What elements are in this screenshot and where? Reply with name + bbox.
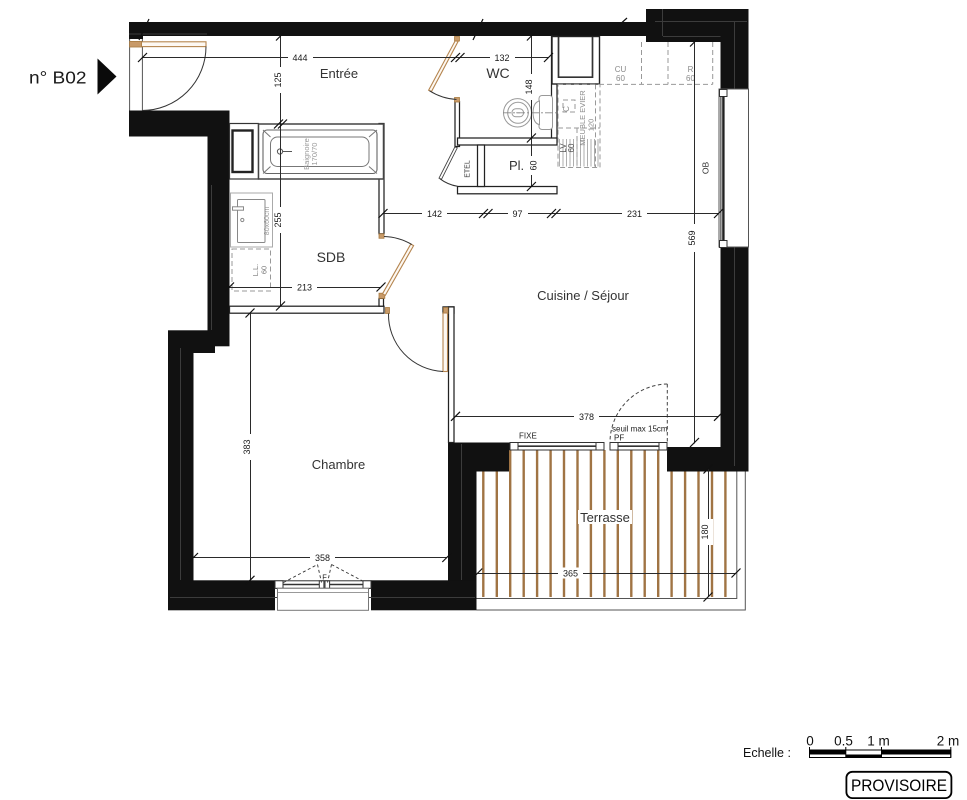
svg-text:97: 97: [512, 209, 522, 219]
svg-text:Terrasse: Terrasse: [580, 510, 630, 525]
svg-text:132: 132: [494, 53, 509, 63]
svg-text:80x60cm: 80x60cm: [264, 207, 271, 236]
svg-text:F: F: [322, 573, 327, 582]
svg-text:Entrée: Entrée: [320, 66, 358, 81]
svg-text:60: 60: [567, 143, 576, 152]
svg-text:444: 444: [292, 53, 307, 63]
svg-text:Echelle :: Echelle :: [743, 746, 791, 760]
svg-text:seuil max 15cm: seuil max 15cm: [612, 425, 668, 434]
svg-text:60: 60: [616, 74, 625, 83]
svg-text:R: R: [688, 65, 694, 74]
svg-text:180: 180: [700, 524, 710, 539]
svg-text:378: 378: [579, 412, 594, 422]
svg-text:Pl.: Pl.: [509, 158, 524, 173]
svg-text:WC: WC: [486, 65, 509, 81]
svg-text:120: 120: [587, 119, 596, 132]
svg-text:Cuisine / Séjour: Cuisine / Séjour: [537, 288, 629, 303]
svg-text:OB: OB: [701, 162, 711, 175]
svg-text:148: 148: [524, 79, 534, 94]
svg-text:231: 231: [627, 209, 642, 219]
svg-text:2 m: 2 m: [937, 734, 960, 749]
svg-text:0.5: 0.5: [834, 734, 853, 749]
svg-text:255: 255: [273, 212, 283, 227]
svg-text:PF: PF: [614, 434, 624, 443]
svg-text:569: 569: [687, 230, 697, 245]
svg-text:n° B02: n° B02: [29, 68, 87, 88]
svg-text:PROVISOIRE: PROVISOIRE: [851, 776, 947, 795]
svg-text:358: 358: [315, 553, 330, 563]
svg-text:C: C: [562, 106, 571, 112]
svg-text:FIXE: FIXE: [519, 432, 537, 441]
svg-text:170/70: 170/70: [310, 143, 319, 166]
svg-text:ETEL: ETEL: [465, 160, 472, 178]
svg-text:Chambre: Chambre: [312, 457, 365, 472]
svg-text:60: 60: [529, 160, 539, 170]
svg-text:383: 383: [242, 439, 252, 454]
svg-text:CU: CU: [615, 65, 627, 74]
svg-text:MEUBLE EVIER: MEUBLE EVIER: [578, 90, 587, 146]
svg-text:0: 0: [806, 734, 814, 749]
svg-text:365: 365: [563, 569, 578, 579]
svg-text:60: 60: [260, 266, 269, 274]
svg-text:142: 142: [427, 209, 442, 219]
svg-text:1 m: 1 m: [867, 734, 890, 749]
svg-text:SDB: SDB: [317, 249, 346, 265]
svg-text:213: 213: [297, 283, 312, 293]
svg-text:125: 125: [273, 72, 283, 87]
